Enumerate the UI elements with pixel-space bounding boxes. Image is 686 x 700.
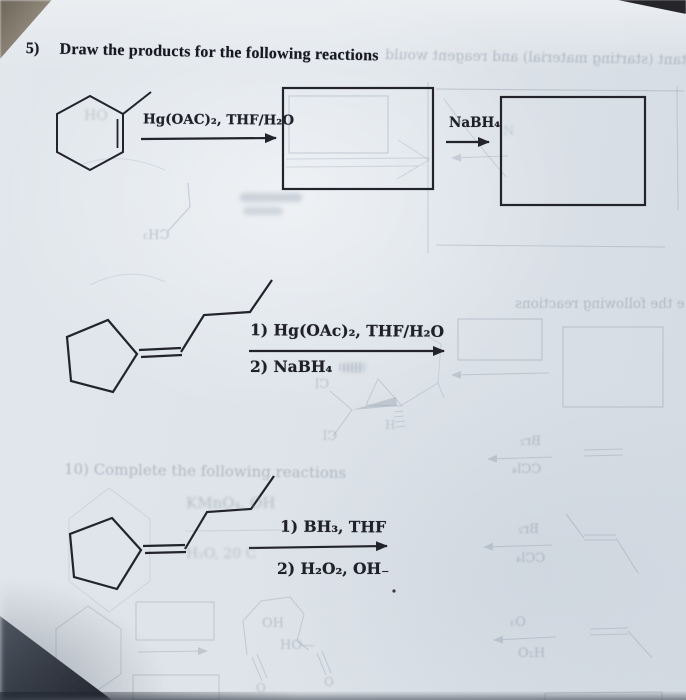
answer-box-1[interactable]	[283, 88, 433, 189]
ghost-smear	[90, 274, 165, 285]
ghost-ccl4-label: CCl₄	[512, 462, 541, 477]
ghost-cl-label: Cl	[315, 377, 329, 392]
ghost-h2o-label: H₂O	[518, 646, 545, 661]
ghost-line	[286, 166, 418, 167]
ghost-left-arrow	[484, 545, 552, 547]
ghost-line	[286, 158, 430, 159]
ghost-smudge-text	[243, 207, 283, 215]
ghost-ho-dash-label: HO—	[280, 638, 315, 653]
photo-edge-bottom-left	[0, 692, 300, 700]
reaction3-step2-label: 2) H₂O₂, OH₋	[277, 559, 389, 578]
ghost-rect	[289, 96, 388, 153]
ghost-bond	[330, 391, 352, 410]
reaction-1	[57, 88, 645, 205]
ghost-h-label: H	[385, 418, 395, 432]
ghost-oh-label: OH	[262, 616, 284, 631]
ghost-smudge-text	[240, 193, 302, 202]
ghost-hash-bond	[394, 411, 406, 427]
ghost-ccl4-label: CCl₄	[516, 551, 545, 566]
ghost-o3-label: O₃	[510, 615, 526, 630]
ghost-wedge-bond	[352, 397, 397, 410]
butyl-chain	[185, 476, 274, 549]
answer-box-2[interactable]	[501, 97, 645, 205]
stray-dot	[392, 589, 395, 592]
ghost-bond	[566, 514, 584, 538]
worksheet-photo: 5) Draw the products for the following r…	[0, 0, 686, 700]
ghost-left-arrow	[452, 373, 549, 375]
ghost-ch3-label: CH₃	[143, 228, 170, 243]
ghost-left-arrow	[494, 637, 556, 640]
ghost-alkene	[590, 628, 652, 658]
ghost-o-label: O	[324, 675, 334, 689]
ghost-ho-label: HO	[84, 108, 108, 124]
ghost-double-bond	[584, 455, 623, 456]
ghost-double-bond	[584, 449, 623, 450]
ghost-smear	[444, 99, 506, 177]
reaction-arrow-1	[141, 138, 276, 139]
reaction3-step1-label: 1) BH₃, THF	[280, 517, 386, 537]
ghost-cl-label: Cl	[323, 429, 337, 444]
reaction2-step1-label: 1) Hg(OAc)₂, THF/H₂O	[250, 320, 444, 341]
ghost-bond	[168, 183, 190, 231]
ghost-arrowhead	[397, 140, 429, 179]
ghost-left-arrow	[488, 457, 552, 459]
ghost-arrow-line	[185, 530, 282, 531]
ghost-h2o-20c-label: H₂O, 20 C	[186, 546, 256, 562]
cyclopentane-ring	[67, 320, 137, 392]
ghost-smudge-text	[340, 363, 366, 372]
exocyclic-double-bond	[139, 348, 181, 350]
ghost-line	[436, 245, 665, 247]
reaction-arrow-3	[249, 546, 387, 548]
reaction1-step2-label: NaBH₄	[449, 115, 500, 131]
ghost-left-arrow	[452, 156, 508, 158]
ghost-br2-label: Br₂	[518, 522, 539, 537]
ghost-line	[436, 89, 684, 91]
ghost-following-reactions: e the following reactions	[515, 296, 685, 312]
ghost-box	[563, 327, 663, 407]
ghost-n-label: N	[503, 124, 514, 139]
ghost-bond	[616, 538, 638, 573]
reaction2-step2-label: 2) NaBH₄	[250, 357, 332, 376]
problem-number: 5)	[26, 40, 40, 57]
ghost-kmno4-label: KMnO₄, OH	[186, 494, 275, 512]
ghost-br2-label: Br₂	[520, 434, 541, 449]
reaction1-reagent-label: Hg(OAC)₂, THF/H₂O	[143, 111, 294, 128]
ghost-page-edge	[677, 86, 678, 210]
ghost-bond	[402, 383, 444, 405]
ghost-box	[458, 319, 542, 360]
exocyclic-double-bond	[141, 355, 182, 357]
butyl-chain	[181, 280, 272, 352]
exocyclic-double-bond	[143, 545, 185, 546]
exocyclic-double-bond	[145, 552, 186, 553]
